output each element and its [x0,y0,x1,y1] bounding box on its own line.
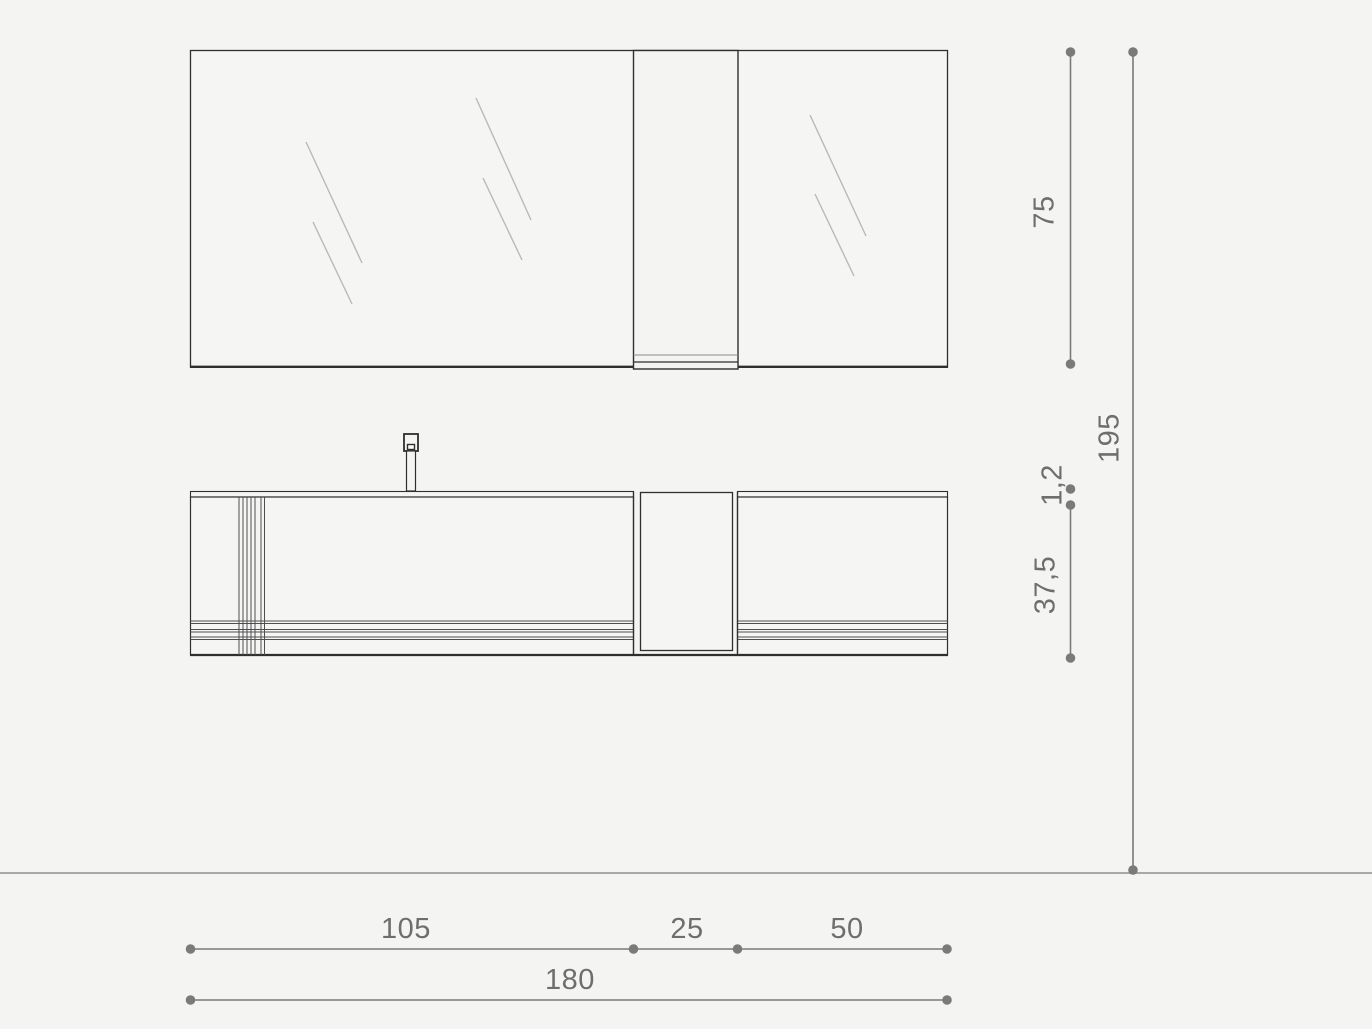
dim-total-height: 195 [1094,47,1138,875]
niche-inner-box [641,493,733,651]
dim-endpoint-dot [186,995,196,1005]
dimensions-horizontal: 105 25 50 180 [186,913,952,1005]
countertop-right [738,492,948,498]
mirror-outline [191,51,948,368]
vanity-right-cabinet [738,497,948,655]
vanity-left-cabinet [191,497,634,655]
dim-endpoint-dot [733,944,743,954]
dim-label-total-width: 180 [545,964,595,996]
mirror-cabinet-strip [634,51,739,370]
faucet [404,434,418,491]
dim-section-widths: 105 25 50 [186,913,952,954]
dim-endpoint-dot [942,995,952,1005]
dim-countertop-thickness: 1,2 [1037,464,1076,510]
dim-mirror-height: 75 [1029,47,1076,369]
vanity-drawing: 75 195 1,2 37,5 10 [0,0,1372,1029]
dim-label-countertop-thickness: 1,2 [1037,464,1069,506]
dim-endpoint-dot [1128,865,1138,875]
dimensions-vertical: 75 195 1,2 37,5 [1029,47,1138,875]
vanity-unit [190,434,948,655]
dim-label-niche-width: 25 [670,913,703,945]
open-niche [634,492,738,656]
faucet-spout-detail [408,445,415,450]
dim-endpoint-dot [1066,47,1076,57]
dim-total-width: 180 [186,964,952,1005]
dim-endpoint-dot [629,944,639,954]
dim-endpoint-dot [942,944,952,954]
dim-endpoint-dot [1128,47,1138,57]
faucet-body [407,451,416,491]
dim-label-total-height: 195 [1094,413,1126,463]
dim-cabinet-height: 37,5 [1030,505,1076,663]
dim-label-mirror-height: 75 [1029,195,1061,228]
countertop-left [191,492,634,498]
dim-endpoint-dot [1066,359,1076,369]
technical-drawing-canvas: 75 195 1,2 37,5 10 [0,0,1372,1029]
dim-label-right-section-width: 50 [830,913,863,945]
dim-label-left-section-width: 105 [381,913,431,945]
dim-label-cabinet-height: 37,5 [1030,556,1062,614]
dim-endpoint-dot [1066,653,1076,663]
mirror-unit [190,51,948,370]
dim-endpoint-dot [186,944,196,954]
